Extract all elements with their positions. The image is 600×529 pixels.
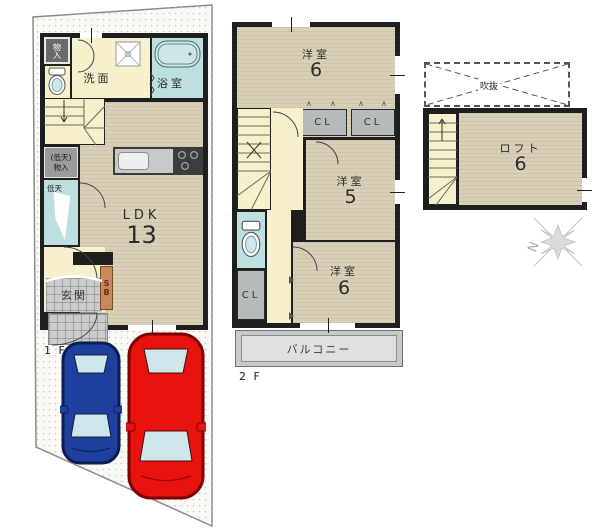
- compass-rose-icon: N: [526, 210, 590, 274]
- car-blue: [60, 340, 122, 466]
- floorplan-canvas: 洗面 物入 浴室 LDK 13: [0, 0, 600, 529]
- compass-north-label: N: [526, 240, 543, 255]
- car-red: [126, 331, 206, 501]
